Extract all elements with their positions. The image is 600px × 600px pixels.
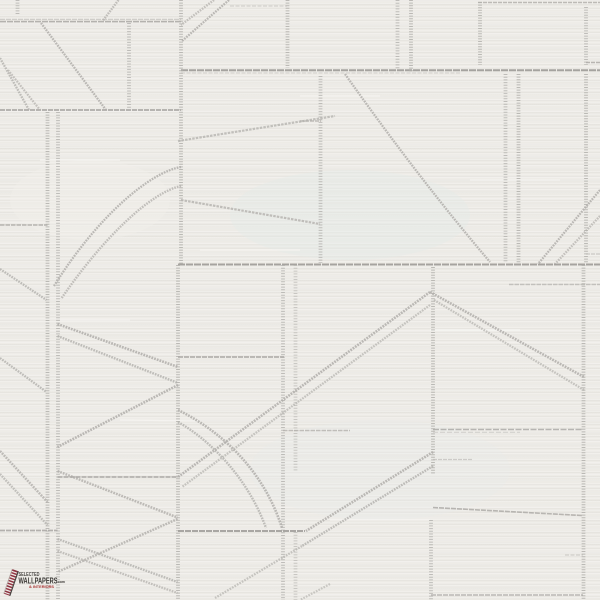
svg-text:& INTERIORS: & INTERIORS	[29, 584, 54, 589]
svg-text:.com: .com	[57, 580, 65, 584]
